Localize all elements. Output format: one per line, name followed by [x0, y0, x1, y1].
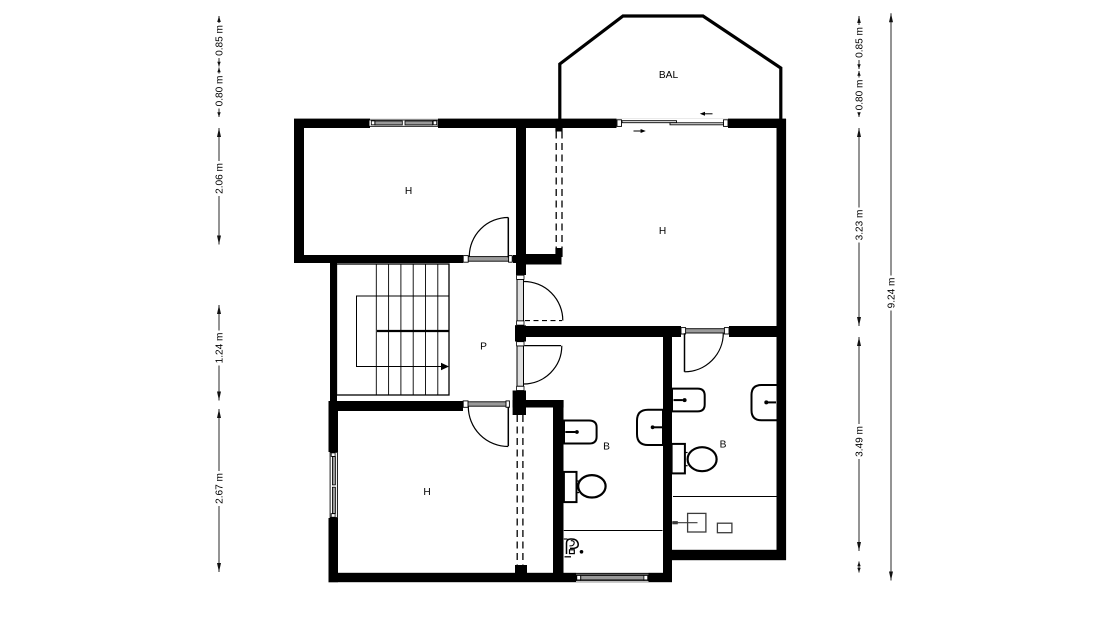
svg-text:0.85 m: 0.85 m	[215, 25, 226, 56]
svg-text:BAL: BAL	[659, 70, 679, 81]
svg-text:3.49 m: 3.49 m	[855, 426, 866, 457]
svg-text:0.80 m: 0.80 m	[215, 76, 226, 107]
svg-text:9.24 m: 9.24 m	[887, 278, 898, 309]
svg-text:1.24 m: 1.24 m	[215, 333, 226, 364]
svg-text:2.67 m: 2.67 m	[215, 473, 226, 504]
svg-text:0.80 m: 0.80 m	[855, 80, 866, 111]
svg-text:H: H	[423, 487, 430, 498]
svg-text:H: H	[405, 186, 412, 197]
svg-text:H: H	[659, 226, 666, 237]
svg-text:3.23 m: 3.23 m	[855, 210, 866, 241]
svg-text:2.06 m: 2.06 m	[215, 163, 226, 194]
svg-text:B: B	[720, 439, 727, 450]
svg-text:B: B	[603, 441, 610, 452]
svg-text:P: P	[480, 341, 487, 352]
svg-text:0.85 m: 0.85 m	[855, 27, 866, 58]
